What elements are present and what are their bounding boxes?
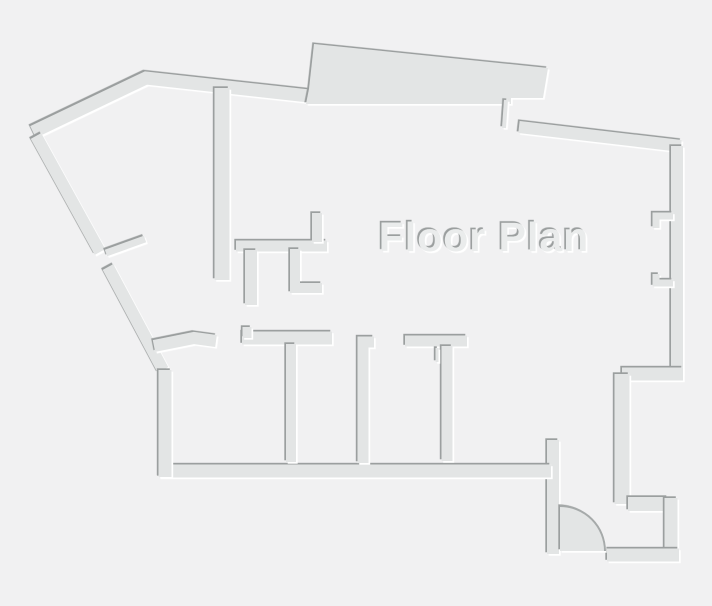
floor-plan-title: Floor Plan [379, 214, 589, 260]
wall-stub-top [504, 100, 506, 128]
floor-plan-drawing: Floor Plan [0, 0, 712, 606]
room-wall-angled [154, 338, 216, 346]
floor-plan-canvas: Floor Plan [0, 0, 712, 606]
